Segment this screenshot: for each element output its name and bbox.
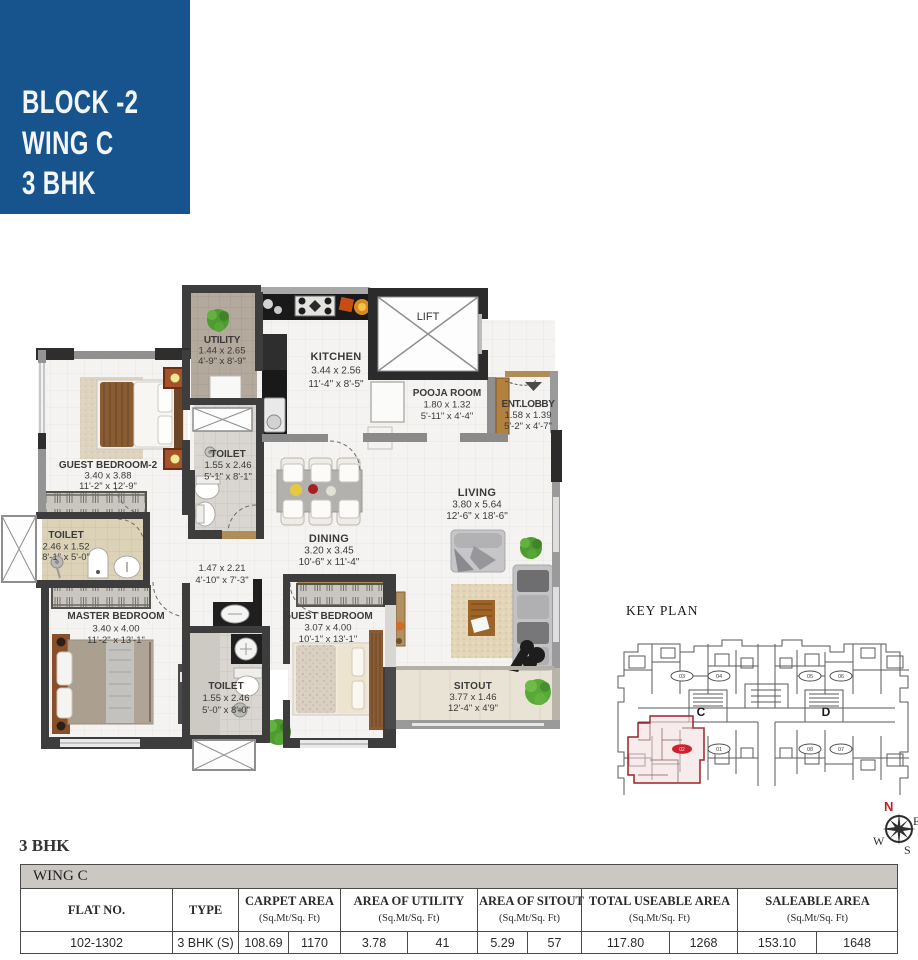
- svg-text:11'-4" x 8'-5": 11'-4" x 8'-5": [308, 379, 364, 390]
- svg-text:S: S: [904, 843, 911, 857]
- svg-text:12'-6" x 18'-6": 12'-6" x 18'-6": [446, 511, 508, 522]
- svg-text:3.40 x 3.88: 3.40 x 3.88: [84, 471, 131, 482]
- svg-text:LIFT: LIFT: [417, 311, 440, 323]
- svg-text:10'-1" x 13'-1": 10'-1" x 13'-1": [299, 634, 357, 645]
- svg-text:02: 02: [679, 747, 685, 753]
- svg-text:4'-9" x 8'-9": 4'-9" x 8'-9": [198, 356, 246, 367]
- svg-text:01: 01: [716, 747, 722, 753]
- svg-text:N: N: [884, 799, 893, 814]
- svg-text:D: D: [822, 705, 831, 719]
- svg-text:07: 07: [838, 747, 844, 753]
- svg-text:10'-6" x 11'-4": 10'-6" x 11'-4": [299, 557, 360, 568]
- svg-text:TOILET: TOILET: [208, 681, 243, 692]
- svg-text:3.20 x 3.45: 3.20 x 3.45: [304, 546, 354, 557]
- svg-text:1.47 x 2.21: 1.47 x 2.21: [198, 563, 245, 574]
- svg-text:4'-10" x 7'-3": 4'-10" x 7'-3": [195, 575, 248, 586]
- svg-text:5'-11" x 4'-4": 5'-11" x 4'-4": [421, 411, 473, 422]
- svg-text:1.44 x 2.65: 1.44 x 2.65: [198, 346, 245, 357]
- svg-text:2.46 x 1.52: 2.46 x 1.52: [42, 542, 89, 553]
- svg-text:1.55 x 2.46: 1.55 x 2.46: [202, 693, 249, 704]
- svg-text:3.44 x 2.56: 3.44 x 2.56: [311, 366, 361, 377]
- svg-text:GUEST BEDROOM-2: GUEST BEDROOM-2: [59, 460, 158, 471]
- svg-text:ENT.LOBBY: ENT.LOBBY: [501, 399, 555, 410]
- svg-text:LIVING: LIVING: [458, 487, 496, 499]
- svg-text:SITOUT: SITOUT: [454, 681, 492, 692]
- svg-text:03: 03: [679, 674, 685, 680]
- svg-text:11'-2" x 12'-9": 11'-2" x 12'-9": [79, 481, 137, 492]
- svg-text:UTILITY: UTILITY: [204, 335, 241, 346]
- svg-text:1.55 x 2.46: 1.55 x 2.46: [204, 460, 251, 471]
- svg-text:5'-1" x 8'-1": 5'-1" x 8'-1": [204, 472, 252, 483]
- svg-text:KITCHEN: KITCHEN: [311, 351, 362, 363]
- svg-text:C: C: [697, 705, 706, 719]
- svg-text:5'-0" x 8'-0": 5'-0" x 8'-0": [202, 705, 250, 716]
- svg-text:3.77 x 1.46: 3.77 x 1.46: [449, 692, 496, 703]
- svg-text:8'-1" x 5'-0": 8'-1" x 5'-0": [42, 552, 90, 563]
- svg-text:05: 05: [807, 674, 813, 680]
- svg-text:3.40 x 4.00: 3.40 x 4.00: [92, 624, 139, 635]
- svg-text:GUEST BEDROOM: GUEST BEDROOM: [283, 611, 372, 622]
- svg-text:DINING: DINING: [309, 533, 349, 545]
- svg-text:E: E: [913, 814, 918, 828]
- svg-text:3.80 x 5.64: 3.80 x 5.64: [452, 500, 502, 511]
- svg-text:04: 04: [716, 674, 722, 680]
- svg-text:5'-2" x 4'-7": 5'-2" x 4'-7": [504, 421, 552, 432]
- svg-text:08: 08: [807, 747, 813, 753]
- svg-text:POOJA ROOM: POOJA ROOM: [413, 388, 482, 399]
- svg-text:MASTER BEDROOM: MASTER BEDROOM: [67, 611, 164, 622]
- svg-text:1.58 x 1.39: 1.58 x 1.39: [504, 410, 551, 421]
- svg-text:06: 06: [838, 674, 844, 680]
- svg-text:3.07 x 4.00: 3.07 x 4.00: [304, 623, 351, 634]
- svg-text:TOILET: TOILET: [48, 530, 83, 541]
- svg-text:W: W: [873, 834, 885, 848]
- svg-text:TOILET: TOILET: [210, 449, 245, 460]
- svg-text:1.80 x 1.32: 1.80 x 1.32: [423, 400, 470, 411]
- svg-text:11'-2" x 13'-1": 11'-2" x 13'-1": [87, 635, 145, 646]
- svg-text:12'-4" x 4'9": 12'-4" x 4'9": [448, 703, 498, 714]
